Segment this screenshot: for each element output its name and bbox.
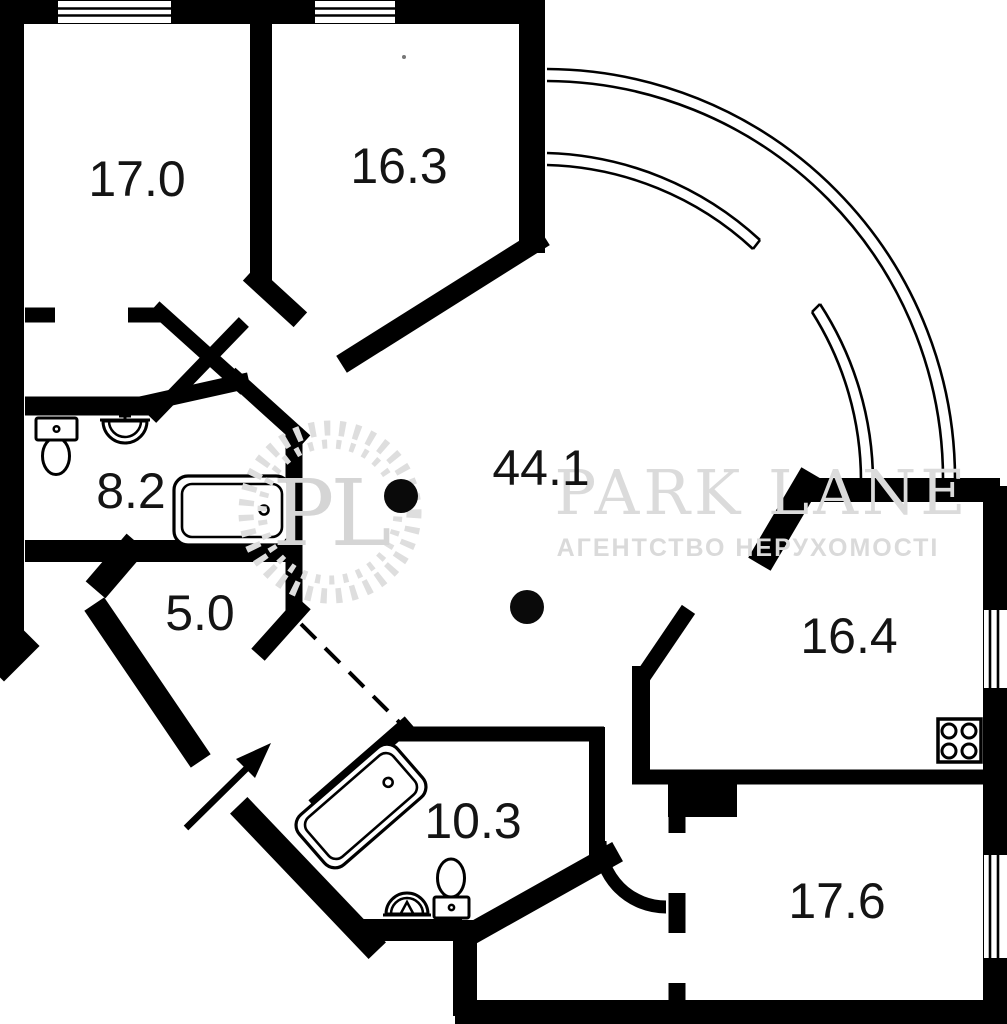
sink-icon — [383, 893, 431, 915]
window-top-left — [58, 1, 171, 23]
wall-kitchen-jamb — [646, 616, 684, 672]
column-dot — [384, 479, 418, 513]
wall-bath82-corner-diag — [236, 379, 299, 436]
watermark-brand: PARK LANE — [555, 456, 970, 529]
wall-hall50-cap — [264, 610, 298, 648]
room-label-16-3: 16.3 — [350, 138, 447, 194]
watermark-subtitle: АГЕНТСТВО НЕРУХОМОСТІ — [557, 534, 940, 562]
wall-left-cap — [4, 646, 24, 666]
balcony-outer-arc-1 — [547, 69, 955, 482]
wall-divider-cap — [257, 280, 293, 313]
floor-plan: PL PARK LANE АГЕНТСТВО НЕРУХОМОСТІ 17.0 … — [0, 0, 1007, 1024]
floor-plan-canvas: PL PARK LANE АГЕНТСТВО НЕРУХОМОСТІ 17.0 … — [0, 0, 1007, 1024]
room-label-17-0: 17.0 — [88, 151, 185, 207]
balcony-inner-arc-1b — [547, 165, 753, 249]
wall-163-diagonal — [350, 242, 536, 359]
artifact-dot — [402, 55, 406, 59]
wall-bath82-top-diag — [147, 382, 241, 403]
room-label-16-4: 16.4 — [800, 608, 897, 664]
room-label-8-2: 8.2 — [96, 463, 166, 519]
window-top-middle — [315, 1, 395, 23]
sink-icon — [100, 411, 150, 443]
room-label-10-3: 10.3 — [424, 793, 521, 849]
room-label-17-6: 17.6 — [788, 873, 885, 929]
balcony-arc-cap-2 — [812, 304, 820, 312]
balcony-outer-arc-2 — [547, 81, 943, 482]
window-kitchen-right — [984, 610, 1007, 688]
opening-dashed-line — [301, 624, 399, 722]
room-label-44-1: 44.1 — [492, 440, 589, 496]
stove-icon — [938, 719, 981, 762]
balcony-arc-cap-1 — [753, 240, 760, 249]
toilet-icon — [36, 418, 77, 475]
room-label-5-0: 5.0 — [165, 585, 235, 641]
balcony-arc — [547, 69, 955, 482]
wall-bath103-bottom-diag — [469, 857, 608, 935]
toilet-icon — [434, 859, 469, 918]
window-176-right — [984, 855, 1007, 958]
watermark-monogram: PL — [273, 460, 390, 567]
column-dot — [510, 590, 544, 624]
